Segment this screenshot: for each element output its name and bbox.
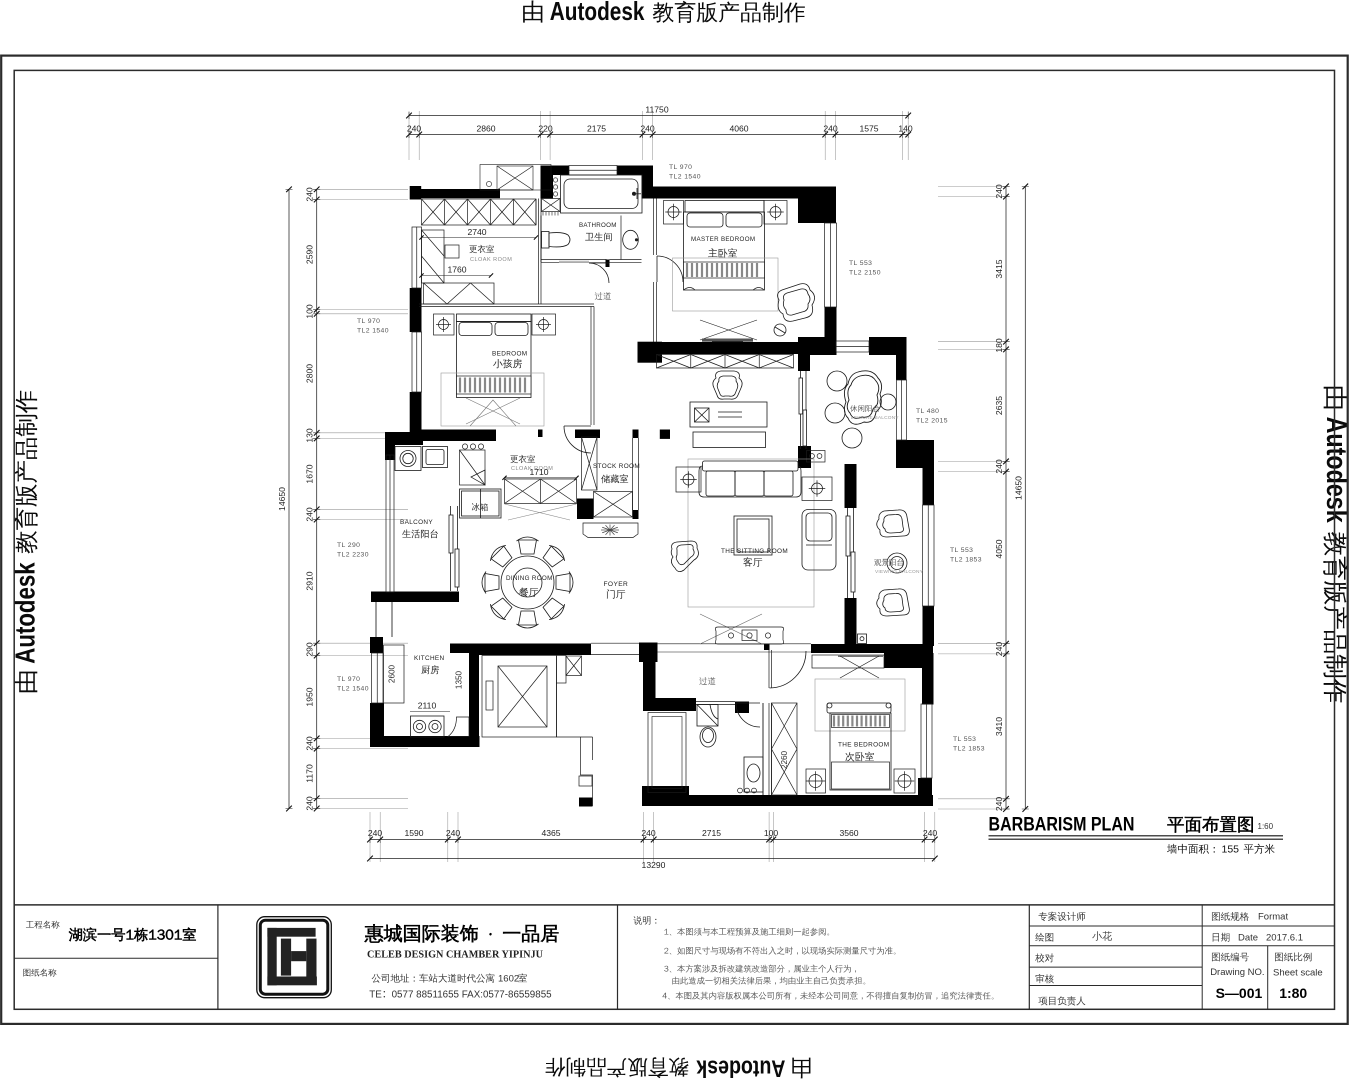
svg-text:1670: 1670 xyxy=(305,464,315,483)
svg-text:240: 240 xyxy=(923,828,938,838)
svg-text:THE BEDROOM: THE BEDROOM xyxy=(838,742,889,749)
svg-text:Sheet scale: Sheet scale xyxy=(1273,968,1323,979)
svg-text:1602: 1602 xyxy=(498,974,519,985)
svg-text:Format: Format xyxy=(1258,912,1288,923)
svg-text:2590: 2590 xyxy=(305,245,315,264)
svg-text:LEISURE BALCONY: LEISURE BALCONY xyxy=(851,415,899,421)
svg-text:240: 240 xyxy=(823,124,838,134)
svg-text:TL2 2150: TL2 2150 xyxy=(849,270,881,277)
svg-text:1710: 1710 xyxy=(529,467,548,477)
svg-text:1590: 1590 xyxy=(404,828,423,838)
svg-text:TL2 1540: TL2 1540 xyxy=(337,686,369,693)
svg-text:Autodesk: Autodesk xyxy=(696,1054,785,1080)
svg-text:TL2 2015: TL2 2015 xyxy=(916,418,948,425)
svg-text:2110: 2110 xyxy=(418,701,437,711)
svg-text:240: 240 xyxy=(446,828,461,838)
svg-text:3415: 3415 xyxy=(994,259,1004,278)
svg-text:240: 240 xyxy=(305,187,315,202)
svg-text:TL2 1540: TL2 1540 xyxy=(357,328,389,335)
svg-text:100: 100 xyxy=(764,828,779,838)
svg-text:1170: 1170 xyxy=(305,764,315,783)
svg-text:BALCONY: BALCONY xyxy=(400,519,433,526)
svg-text:155: 155 xyxy=(1222,844,1240,856)
svg-text:180: 180 xyxy=(994,338,1004,353)
svg-text:240: 240 xyxy=(994,797,1004,812)
svg-text:3410: 3410 xyxy=(994,717,1004,736)
svg-text:BARBARISM PLAN: BARBARISM PLAN xyxy=(989,814,1135,836)
svg-text:TL 553: TL 553 xyxy=(950,547,973,554)
svg-text:240: 240 xyxy=(305,736,315,751)
svg-text:TE：0577 88511655 FAX:0577-8: TE：0577 88511655 FAX:0577-86559855 xyxy=(369,990,552,1001)
svg-text:4365: 4365 xyxy=(541,828,560,838)
svg-text:140: 140 xyxy=(898,124,913,134)
svg-text:14650: 14650 xyxy=(1014,476,1024,500)
svg-text:TL 290: TL 290 xyxy=(337,542,360,549)
svg-text:THE SITTING ROOM: THE SITTING ROOM xyxy=(721,548,788,555)
svg-text:240: 240 xyxy=(305,796,315,811)
svg-text:TL2 2230: TL2 2230 xyxy=(337,552,369,559)
svg-text:VIEWING BALCONY: VIEWING BALCONY xyxy=(875,569,924,575)
svg-text:1:60: 1:60 xyxy=(1258,822,1274,831)
svg-text:290: 290 xyxy=(305,642,315,657)
svg-text:2635: 2635 xyxy=(994,396,1004,415)
svg-text:1575: 1575 xyxy=(859,124,878,134)
svg-text:240: 240 xyxy=(994,459,1004,474)
svg-text:TL 553: TL 553 xyxy=(953,736,976,743)
svg-text:1760: 1760 xyxy=(447,265,466,275)
svg-text:CELEB DESIGN CHAMBER YI: CELEB DESIGN CHAMBER YIPINJU xyxy=(367,950,543,961)
svg-text:2740: 2740 xyxy=(467,227,486,237)
svg-text:100: 100 xyxy=(305,304,315,319)
svg-text:CLOAK ROOM: CLOAK ROOM xyxy=(470,257,512,263)
svg-text:STOCK ROOM: STOCK ROOM xyxy=(593,463,640,470)
svg-text:KITCHEN: KITCHEN xyxy=(414,655,445,662)
svg-text:Autodesk: Autodesk xyxy=(550,0,645,26)
svg-text:S—001: S—001 xyxy=(1216,985,1263,1001)
svg-text:11750: 11750 xyxy=(645,105,668,115)
svg-text:130: 130 xyxy=(305,428,315,443)
svg-text:MASTER BEDROOM: MASTER BEDROOM xyxy=(691,236,755,243)
svg-text:3560: 3560 xyxy=(839,828,858,838)
svg-text:DINING ROOM: DINING ROOM xyxy=(506,575,553,582)
svg-text:2860: 2860 xyxy=(476,124,495,134)
svg-text:13290: 13290 xyxy=(642,860,666,870)
svg-text:1:80: 1:80 xyxy=(1279,985,1307,1001)
svg-text:TL 970: TL 970 xyxy=(357,318,380,325)
svg-text:BEDROOM: BEDROOM xyxy=(492,351,527,358)
svg-text:Date: Date xyxy=(1238,933,1258,944)
svg-text:FOYER: FOYER xyxy=(604,581,629,588)
svg-text:TL 553: TL 553 xyxy=(849,260,872,267)
svg-text:240: 240 xyxy=(640,124,655,134)
svg-text:2175: 2175 xyxy=(587,124,606,134)
svg-text:TL2 1853: TL2 1853 xyxy=(953,746,985,753)
svg-text:BATHROOM: BATHROOM xyxy=(579,222,617,229)
svg-text:2600: 2600 xyxy=(388,664,397,683)
svg-text:TL 970: TL 970 xyxy=(337,676,360,683)
svg-text:TL 970: TL 970 xyxy=(669,164,692,171)
svg-text:240: 240 xyxy=(994,642,1004,657)
svg-text:2800: 2800 xyxy=(305,364,315,383)
svg-text:240: 240 xyxy=(641,828,656,838)
svg-text:2715: 2715 xyxy=(702,828,721,838)
svg-text:2910: 2910 xyxy=(305,571,315,590)
svg-text:4050: 4050 xyxy=(994,539,1004,558)
svg-text:240: 240 xyxy=(994,184,1004,199)
svg-text:TL2 1540: TL2 1540 xyxy=(669,174,701,181)
svg-text:14650: 14650 xyxy=(277,487,287,511)
svg-text:4060: 4060 xyxy=(729,124,748,134)
svg-text:1350: 1350 xyxy=(455,670,464,689)
svg-text:2260: 2260 xyxy=(780,750,789,769)
svg-text:240: 240 xyxy=(407,124,422,134)
svg-text:240: 240 xyxy=(368,828,383,838)
svg-text:240: 240 xyxy=(305,507,315,522)
svg-text:2017.6.1: 2017.6.1 xyxy=(1266,933,1303,944)
svg-text:TL2 1853: TL2 1853 xyxy=(950,557,982,564)
svg-text:1950: 1950 xyxy=(305,687,315,706)
svg-text:Drawing NO.: Drawing NO. xyxy=(1210,967,1264,978)
svg-text:220: 220 xyxy=(538,124,553,134)
svg-text:TL 480: TL 480 xyxy=(916,408,939,415)
